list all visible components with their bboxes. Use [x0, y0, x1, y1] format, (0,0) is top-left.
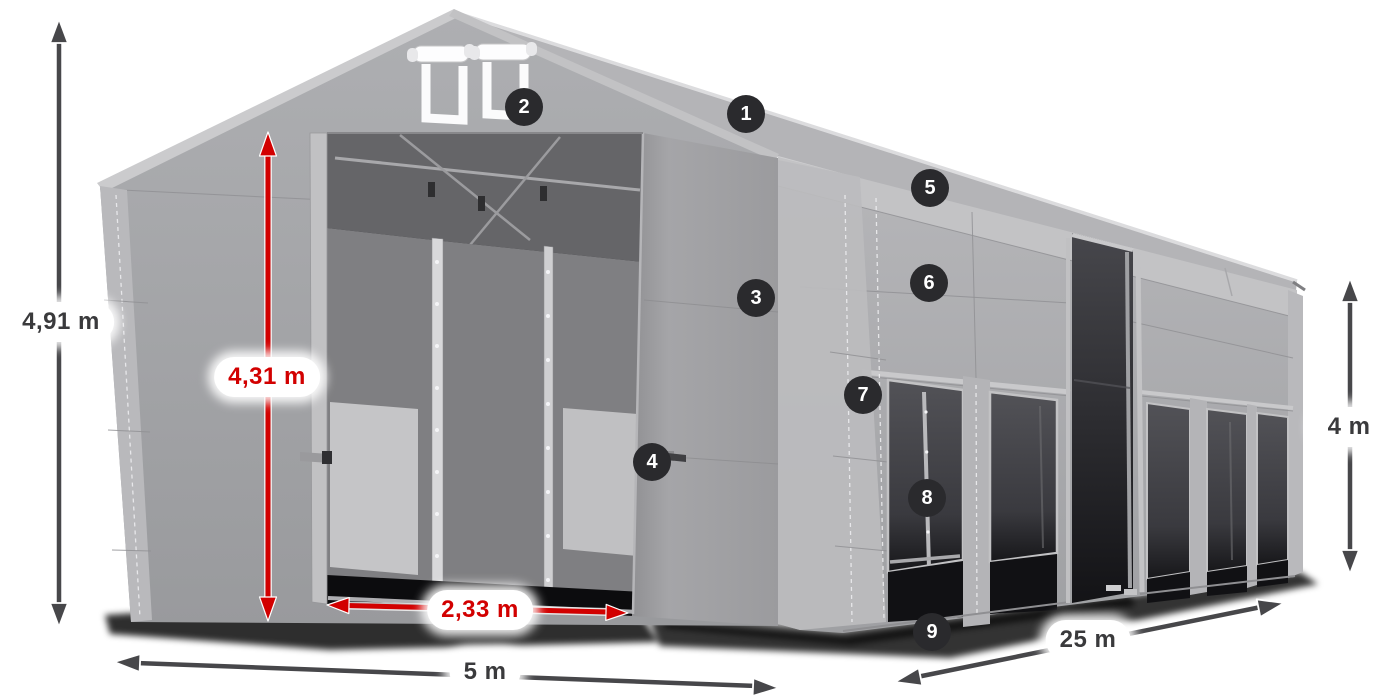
dimension-label-length: 25 m: [1046, 620, 1131, 660]
callout-5[interactable]: 5: [911, 169, 949, 207]
side-door-opening: [1068, 233, 1137, 603]
callout-2[interactable]: 2: [505, 88, 543, 126]
window-pane: [1257, 413, 1288, 565]
rear-frame-pole: [544, 246, 553, 610]
callout-6[interactable]: 6: [910, 264, 948, 302]
callout-3[interactable]: 3: [737, 279, 775, 317]
rear-frame-pole: [432, 238, 443, 602]
tent-dimension-diagram: 4,91 m 4,31 m 2,33 m 5 m 25 m 4 m 1 2 3 …: [0, 0, 1400, 700]
rear-door-window: [563, 408, 637, 556]
frame-foot-plate: [1124, 589, 1137, 595]
rolled-tarp: [475, 44, 531, 60]
arrow-width: [114, 654, 779, 696]
right-door-leaf: [632, 133, 778, 626]
callout-4[interactable]: 4: [633, 443, 671, 481]
side-opening-interior: [1072, 233, 1133, 603]
back-corner-band: [1288, 290, 1303, 578]
front-entrance-opening: [327, 133, 643, 616]
callout-7[interactable]: 7: [844, 376, 882, 414]
window-post: [1190, 398, 1207, 595]
dimension-label-side-height: 4 m: [1314, 407, 1385, 447]
frame-foot-plate: [1106, 585, 1121, 591]
tent-illustration: [0, 0, 1400, 700]
window-pane: [1207, 409, 1247, 572]
callout-8[interactable]: 8: [908, 479, 946, 517]
dimension-label-inner-height: 4,31 m: [214, 357, 320, 397]
window-pane: [990, 392, 1057, 562]
callout-1[interactable]: 1: [727, 95, 765, 133]
rear-door-window: [330, 402, 418, 575]
callout-9[interactable]: 9: [913, 613, 951, 651]
rolled-tarp: [413, 46, 469, 62]
dimension-label-total-height: 4,91 m: [8, 302, 114, 342]
dimension-label-entrance-width: 2,33 m: [427, 590, 533, 630]
window-post: [1247, 404, 1257, 588]
window-pane: [1147, 403, 1190, 579]
window-post: [963, 376, 990, 627]
dimension-label-width: 5 m: [450, 652, 521, 692]
